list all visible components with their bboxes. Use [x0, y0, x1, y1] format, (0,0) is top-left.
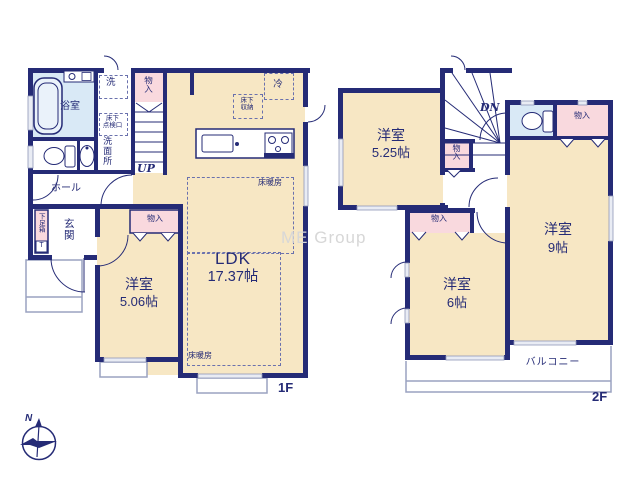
balcony-label: バルコニー [498, 357, 608, 368]
fridge-label: 冷 [264, 80, 292, 91]
room1-name-label: 洋室 [99, 277, 179, 293]
closet-1f-label: 物入 [143, 76, 153, 93]
underfloor-hatch-label: 床下 点検口 [99, 115, 126, 130]
hall-label: ホール [42, 183, 90, 194]
underfloor-storage-label: 床下 収納 [233, 97, 261, 112]
closet-room1-label: 物入 [130, 215, 180, 224]
room9-size-label: 9帖 [518, 241, 598, 256]
entrance-label: 玄関 [62, 218, 74, 241]
shoe-box-door-label: T [36, 242, 47, 250]
floor-heating-zone-kitchen [187, 177, 294, 254]
stairs-up-label: UP [137, 163, 155, 175]
laundry-label: 洗 [106, 78, 116, 89]
floor-heating-label-1: 床暖房 [258, 179, 282, 188]
washbasin-icon [80, 146, 94, 167]
kitchen-counter-icon [196, 129, 294, 158]
room525-size-label: 5.25帖 [347, 146, 435, 161]
closet-r6-label: 物入 [408, 215, 470, 224]
room525-name-label: 洋室 [347, 128, 435, 144]
toilet-1f-icon [44, 146, 75, 167]
closet-stairs-label: 物入 [451, 144, 460, 160]
room9-name-label: 洋室 [518, 222, 598, 238]
floorplan-canvas: 浴室 洗 床下 点検口 洗面所 ホール 玄関 下足箱 T 物入 UP 冷 床下 … [0, 0, 640, 480]
closet-r9-label: 物入 [556, 112, 608, 121]
floor1-label: 1F [278, 381, 293, 396]
compass-icon [20, 418, 57, 460]
bath-label: 浴室 [60, 101, 80, 112]
floor2-label: 2F [592, 390, 607, 405]
compass-north-label: N [25, 413, 32, 424]
watermark: ME Group [281, 228, 366, 247]
ldk-name-label: LDK [187, 249, 279, 268]
stairs-down-label: DN [480, 102, 500, 114]
room1-size-label: 5.06帖 [99, 295, 179, 310]
ldk-size-label: 17.37帖 [187, 269, 279, 285]
floor-heating-label-2: 床暖房 [188, 352, 212, 361]
washroom-label: 洗面所 [102, 136, 112, 166]
room6-size-label: 6帖 [417, 296, 497, 311]
room6-name-label: 洋室 [417, 277, 497, 293]
shoe-box-label: 下足箱 [37, 213, 44, 233]
